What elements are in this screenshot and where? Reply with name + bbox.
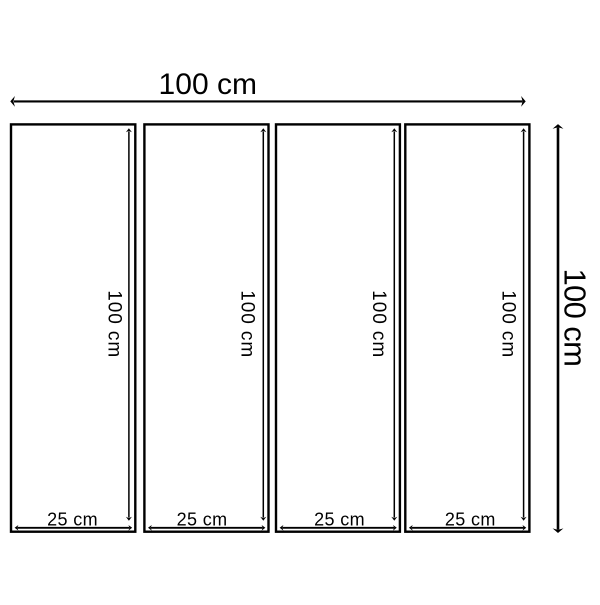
svg-text:25 cm: 25 cm [314,509,365,529]
svg-text:25 cm: 25 cm [177,509,228,529]
svg-text:100 cm: 100 cm [236,290,257,357]
svg-text:100 cm: 100 cm [103,290,124,357]
svg-text:100 cm: 100 cm [159,68,258,101]
svg-text:100 cm: 100 cm [368,290,389,357]
svg-text:100 cm: 100 cm [498,290,519,357]
svg-text:25 cm: 25 cm [445,509,496,529]
svg-text:25 cm: 25 cm [47,509,98,529]
svg-text:100 cm: 100 cm [558,268,593,367]
